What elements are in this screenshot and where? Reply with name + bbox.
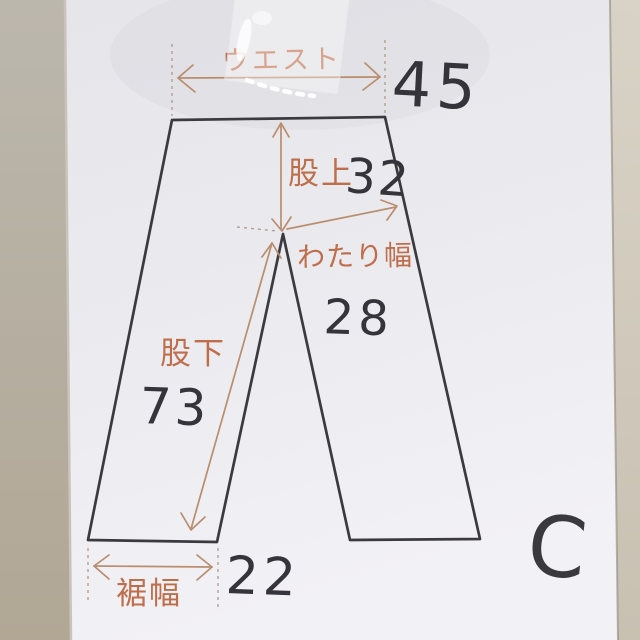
pants-measurement-diagram: ウエスト 股上 わたり幅 股下 裾幅 45 32 28 73 22 C bbox=[0, 0, 640, 640]
inseam-label: 股下 bbox=[160, 336, 226, 372]
thigh-width-label: わたり幅 bbox=[297, 239, 414, 274]
tape-glint-spot bbox=[252, 11, 272, 25]
hem-arrow-line bbox=[94, 566, 212, 567]
thigh-width-value: 28 bbox=[323, 289, 394, 347]
waist-value: 45 bbox=[390, 47, 483, 125]
letter-c-mark: C bbox=[523, 495, 592, 599]
inseam-value: 73 bbox=[139, 377, 211, 437]
hem-width-label: 裾幅 bbox=[116, 576, 182, 612]
hem-width-value: 22 bbox=[225, 546, 301, 609]
photo-of-measurement-sheet: ウエスト 股上 わたり幅 股下 裾幅 45 32 28 73 22 C bbox=[0, 0, 640, 640]
rise-value: 32 bbox=[344, 148, 413, 208]
